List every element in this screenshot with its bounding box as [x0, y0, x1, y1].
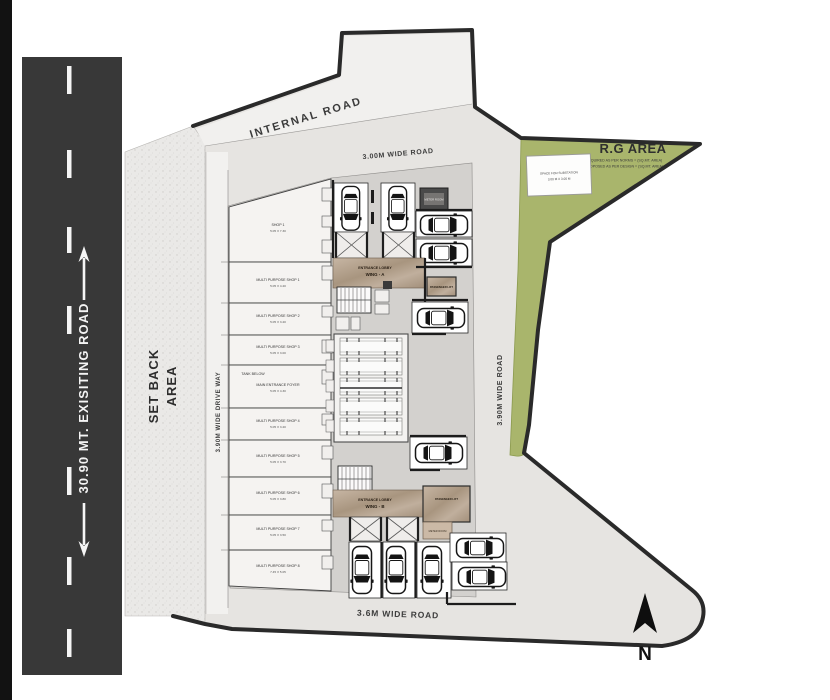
staircase-lower — [338, 466, 372, 492]
existing-road-label: 30.90 MT. EXISITING ROAD — [76, 303, 91, 494]
driveway-label: 3.90M WIDE DRIVE WAY — [216, 372, 222, 453]
setback-area: SET BACK AREA — [125, 126, 205, 624]
existing-road: 30.90 MT. EXISITING ROAD — [22, 57, 122, 675]
car — [421, 241, 468, 264]
car-lift-box — [387, 517, 418, 541]
wall-segment — [371, 212, 374, 224]
shop-dims: 5.05 X 7.30 — [270, 229, 286, 233]
shop-dims: 5.05 X 3.80 — [270, 497, 286, 501]
parking-mid-right — [412, 302, 468, 333]
parking-bottom — [349, 542, 451, 598]
elect-room-box: METER ROOM — [423, 522, 452, 539]
shop-name: MULTI PURPOSE SHOP 1 — [256, 278, 299, 282]
car-lift-box — [350, 517, 381, 541]
staircase-upper — [337, 287, 371, 313]
lobby-a-label-2: WING - A — [366, 272, 386, 277]
rg-area-note-2: PROPOSED AS PER DESIGN = (SQ.MT. AREA) — [585, 165, 663, 169]
car — [416, 441, 463, 464]
parking-platform — [340, 378, 402, 395]
car — [459, 565, 506, 588]
shop-dims: 5.05 X 3.20 — [270, 320, 286, 324]
parking-platform — [340, 338, 402, 355]
substation-label-2: 3.00 M X 3.00 M — [548, 177, 571, 182]
shop-dims: 5.05 X 3.50 — [270, 533, 286, 537]
lobby-b-label-2: WING - B — [365, 504, 384, 509]
shop-dims: 5.05 X 3.00 — [270, 351, 286, 355]
shop-name: MULTI PURPOSE SHOP 3 — [256, 345, 299, 349]
rg-area-note-1: REQUIRED AS PER NORMS = (SQ.MT. AREA) — [586, 159, 662, 163]
mechanical-parking — [326, 334, 408, 442]
rg-area: R.G AREA REQUIRED AS PER NORMS = (SQ.MT.… — [510, 139, 699, 456]
wall-segment — [371, 190, 374, 203]
meter-room-label: METER ROOM — [424, 198, 444, 202]
parking-platform — [340, 358, 402, 375]
parking-platform — [340, 418, 402, 435]
shop-room — [229, 303, 331, 335]
shop-dims: 7.45 X 5.05 — [270, 570, 286, 574]
site-plan-canvas: 30.90 MT. EXISITING ROAD SET BACK AREA I… — [0, 0, 830, 700]
shop-dims: 5.05 X 4.30 — [270, 389, 286, 393]
lobby-wing-a: ENTRANCE LOBBY WING - A — [333, 258, 425, 288]
meter-room-box: METER ROOM — [420, 188, 448, 210]
car — [418, 306, 465, 329]
shop-name: MULTI PURPOSE SHOP 7 — [256, 527, 299, 531]
shop-room — [229, 477, 331, 515]
lobby-a-label-1: ENTRANCE LOBBY — [358, 266, 392, 270]
passenger-lift-a: PASSENGER LIFT — [427, 277, 456, 296]
elect-room-label: METER ROOM — [429, 529, 447, 533]
shop-name: MULTI PURPOSE SHOP 6 — [256, 491, 299, 495]
road-3-90-label: 3.90M WIDE ROAD — [497, 354, 504, 425]
car — [340, 186, 362, 230]
page-left-border — [0, 0, 12, 700]
parking-bottom-right — [450, 533, 507, 590]
parking-low-right — [410, 437, 467, 469]
lobby-b-label-1: ENTRANCE LOBBY — [358, 498, 392, 502]
shop-room — [229, 440, 331, 477]
passenger-lift-a-label: PASSENGER LIFT — [430, 285, 453, 289]
parking-platform — [340, 398, 402, 415]
shop-room — [229, 408, 331, 440]
car — [421, 213, 468, 236]
setback-label-line2: AREA — [164, 366, 179, 407]
substation-box: SPACE FOR SUBSTATION 3.00 M X 3.00 M — [526, 154, 591, 196]
car — [420, 547, 443, 594]
shop-name: MAIN ENTRANCE FOYER — [256, 383, 300, 387]
shop-name: MULTI PURPOSE SHOP 8 — [256, 564, 299, 568]
car-lift-box — [336, 232, 367, 258]
passenger-lift-b-label: PASSENGER LIFT — [435, 497, 458, 501]
shop-dims: 5.05 X 4.20 — [270, 284, 286, 288]
lobby-wing-b: ENTRANCE LOBBY WING - B — [333, 490, 425, 517]
car — [457, 536, 504, 559]
driveway-strip: 3.90M WIDE DRIVE WAY — [206, 152, 228, 614]
shop-name: MULTI PURPOSE SHOP 5 — [256, 454, 299, 458]
car-lift-box — [383, 232, 414, 258]
shop-dims: 5.05 X 3.20 — [270, 425, 286, 429]
car — [384, 547, 407, 594]
north-label: N — [638, 644, 652, 665]
car — [387, 186, 409, 230]
shop-name: SHOP 1 — [271, 223, 284, 227]
shop-dims: 5.05 X 3.70 — [270, 460, 286, 464]
shop-room — [229, 335, 331, 365]
shop-name: MULTI PURPOSE SHOP 4 — [256, 419, 299, 423]
shop-name: MULTI PURPOSE SHOP 2 — [256, 314, 299, 318]
shop-room — [229, 262, 331, 303]
car — [350, 547, 373, 594]
setback-label-line1: SET BACK — [146, 349, 161, 423]
tank-note: TANK BELOW — [241, 372, 265, 376]
passenger-lift-b: PASSENGER LIFT — [423, 486, 470, 522]
